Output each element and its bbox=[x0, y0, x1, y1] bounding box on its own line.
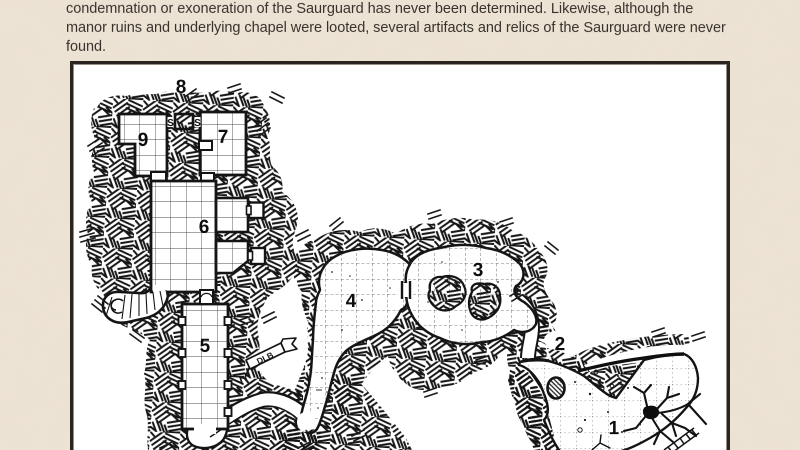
svg-text:7: 7 bbox=[218, 127, 229, 148]
svg-text:9: 9 bbox=[138, 130, 149, 151]
svg-text:S: S bbox=[194, 118, 201, 129]
svg-text:S: S bbox=[167, 118, 174, 129]
svg-text:3: 3 bbox=[473, 260, 484, 281]
svg-text:6: 6 bbox=[199, 217, 210, 238]
svg-text:5: 5 bbox=[200, 336, 211, 357]
svg-text:4: 4 bbox=[346, 291, 357, 312]
svg-text:8: 8 bbox=[176, 77, 187, 98]
svg-text:1: 1 bbox=[609, 418, 620, 439]
svg-text:2: 2 bbox=[555, 334, 566, 355]
